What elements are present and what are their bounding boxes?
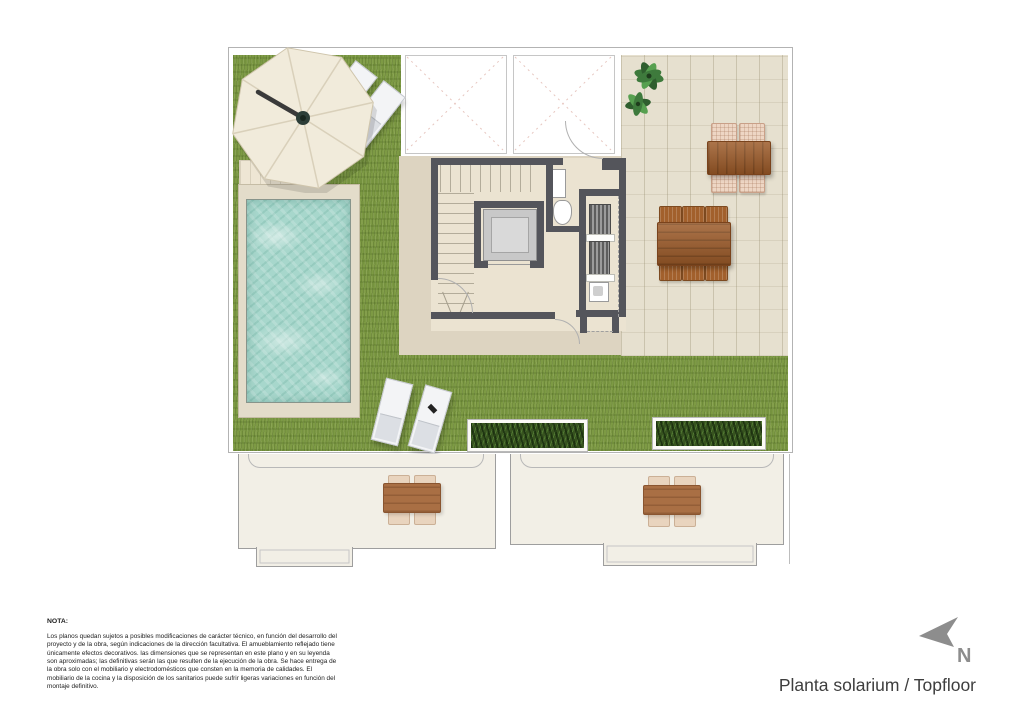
wall-segment (537, 201, 544, 268)
dashed-threshold (587, 331, 613, 332)
wall-segment (546, 158, 553, 228)
vent-unit (589, 204, 611, 235)
awning-line (520, 454, 774, 468)
note-block: NOTA: Los planos quedan sujetos a posibl… (47, 618, 339, 691)
building-outline-line (789, 454, 790, 564)
planter-box (653, 418, 765, 449)
wall-segment (474, 261, 488, 268)
toilet (553, 200, 572, 225)
note-heading: NOTA: (47, 618, 339, 625)
wall-segment (580, 317, 587, 333)
balcony-step (256, 547, 353, 567)
towel-item (427, 404, 437, 414)
planter-box (468, 420, 587, 451)
swimming-pool (246, 199, 351, 403)
awning-line (248, 454, 484, 468)
plan-title: Planta solarium / Topfloor (779, 675, 976, 696)
lower-dining-table (643, 485, 701, 515)
wall-segment (431, 158, 438, 280)
wall-segment (431, 158, 563, 165)
north-label: N (957, 645, 971, 667)
elevator-cab-inner (491, 217, 529, 253)
plant-icon (622, 54, 692, 126)
wall-segment (530, 261, 544, 268)
parasol-icon (228, 43, 378, 193)
north-arrow-icon: N (913, 612, 995, 668)
note-body: Los planos quedan sujetos a posibles mod… (47, 633, 339, 691)
balcony-step (603, 543, 757, 566)
shelf (586, 274, 615, 282)
lower-floor-terrace-left (238, 454, 496, 549)
elevator-door-sill (488, 264, 530, 265)
vent-unit (589, 241, 610, 275)
dining-table-4-seats (707, 141, 771, 175)
plan-sheet: NOTA: Los planos quedan sujetos a posibl… (0, 0, 1024, 724)
wall-segment (431, 312, 555, 319)
lower-dining-table (383, 483, 441, 513)
wall-segment (579, 189, 626, 196)
staircase-upper-flight (440, 162, 536, 192)
wall-segment (474, 201, 544, 208)
dining-table-6-seats (657, 222, 731, 266)
dashed-shaft-line (618, 196, 619, 317)
wall-segment (474, 201, 481, 268)
wall-segment (612, 317, 619, 333)
wall-segment (579, 189, 586, 317)
wall-segment (619, 158, 626, 317)
main-floor-plan (228, 47, 793, 453)
appliance-drum (593, 286, 603, 296)
